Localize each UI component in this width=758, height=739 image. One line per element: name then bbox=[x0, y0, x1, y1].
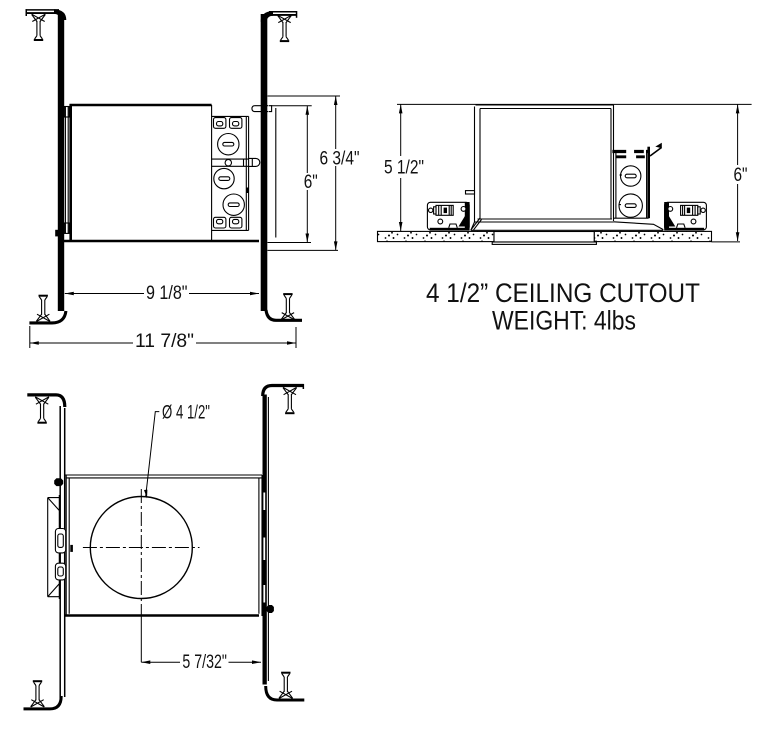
svg-text:6": 6" bbox=[304, 172, 318, 193]
svg-text:Ø 4 1/2": Ø 4 1/2" bbox=[162, 403, 210, 424]
svg-text:4 1/2” CEILING CUTOUT: 4 1/2” CEILING CUTOUT bbox=[426, 278, 700, 308]
svg-text:9 1/8": 9 1/8" bbox=[146, 283, 188, 304]
svg-text:11 7/8": 11 7/8" bbox=[135, 331, 194, 352]
svg-text:WEIGHT: 4lbs: WEIGHT: 4lbs bbox=[492, 306, 636, 336]
svg-text:6": 6" bbox=[734, 165, 748, 186]
svg-text:5 7/32": 5 7/32" bbox=[182, 652, 227, 673]
svg-text:6 3/4": 6 3/4" bbox=[320, 148, 360, 169]
svg-text:5 1/2": 5 1/2" bbox=[384, 158, 424, 179]
